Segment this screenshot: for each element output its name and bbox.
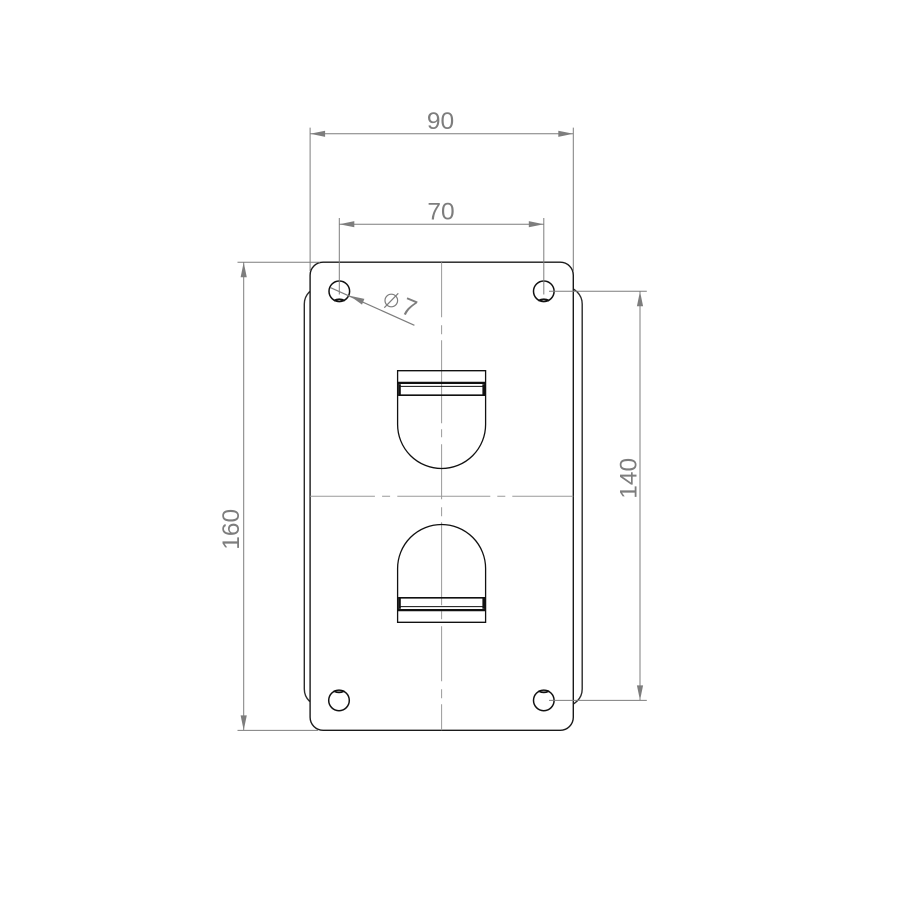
svg-text:90: 90	[427, 108, 454, 135]
svg-text:160: 160	[218, 509, 245, 550]
svg-text:140: 140	[615, 458, 642, 499]
svg-text:70: 70	[427, 198, 454, 225]
